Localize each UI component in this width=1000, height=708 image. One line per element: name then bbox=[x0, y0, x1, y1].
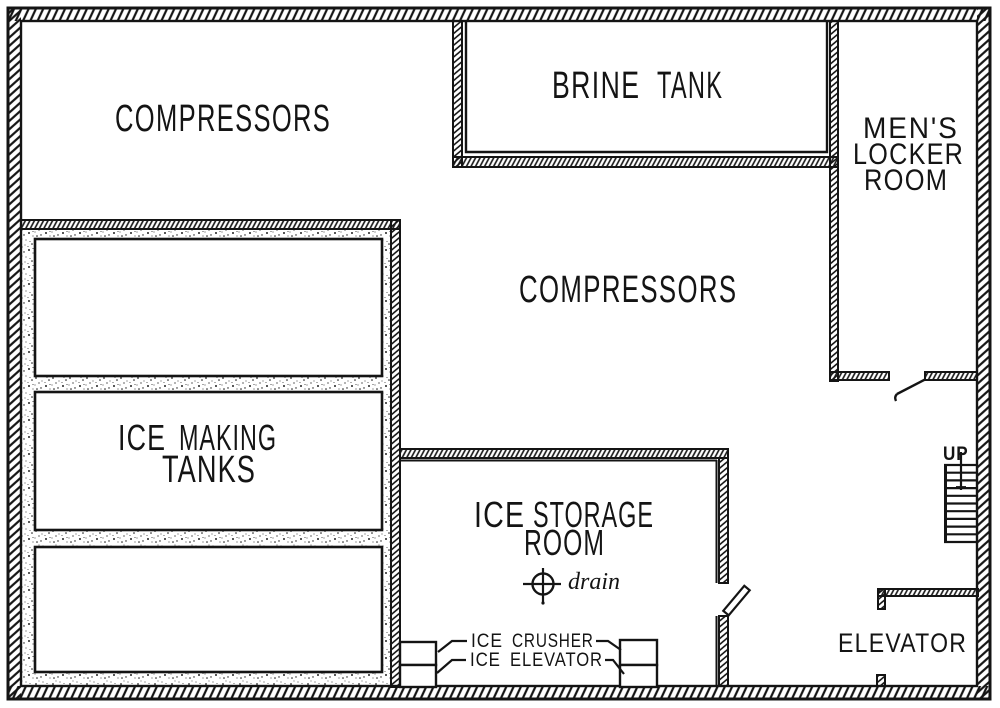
svg-text:TANKS: TANKS bbox=[162, 449, 256, 492]
svg-text:ICE: ICE bbox=[474, 495, 525, 535]
svg-text:ROOM: ROOM bbox=[524, 522, 605, 563]
svg-text:BRINE: BRINE bbox=[552, 63, 640, 106]
svg-text:ELEVATOR: ELEVATOR bbox=[510, 649, 603, 670]
svg-text:TANK: TANK bbox=[657, 63, 723, 106]
svg-text:UP: UP bbox=[943, 443, 969, 464]
svg-text:COMPRESSORS: COMPRESSORS bbox=[519, 268, 737, 310]
svg-text:ICE: ICE bbox=[471, 629, 503, 651]
svg-text:ICE: ICE bbox=[118, 417, 166, 458]
svg-text:ICE: ICE bbox=[470, 649, 501, 670]
svg-text:drain: drain bbox=[568, 569, 620, 595]
svg-text:ROOM: ROOM bbox=[864, 163, 948, 196]
svg-text:ELEVATOR: ELEVATOR bbox=[838, 628, 967, 658]
svg-text:COMPRESSORS: COMPRESSORS bbox=[115, 97, 331, 139]
